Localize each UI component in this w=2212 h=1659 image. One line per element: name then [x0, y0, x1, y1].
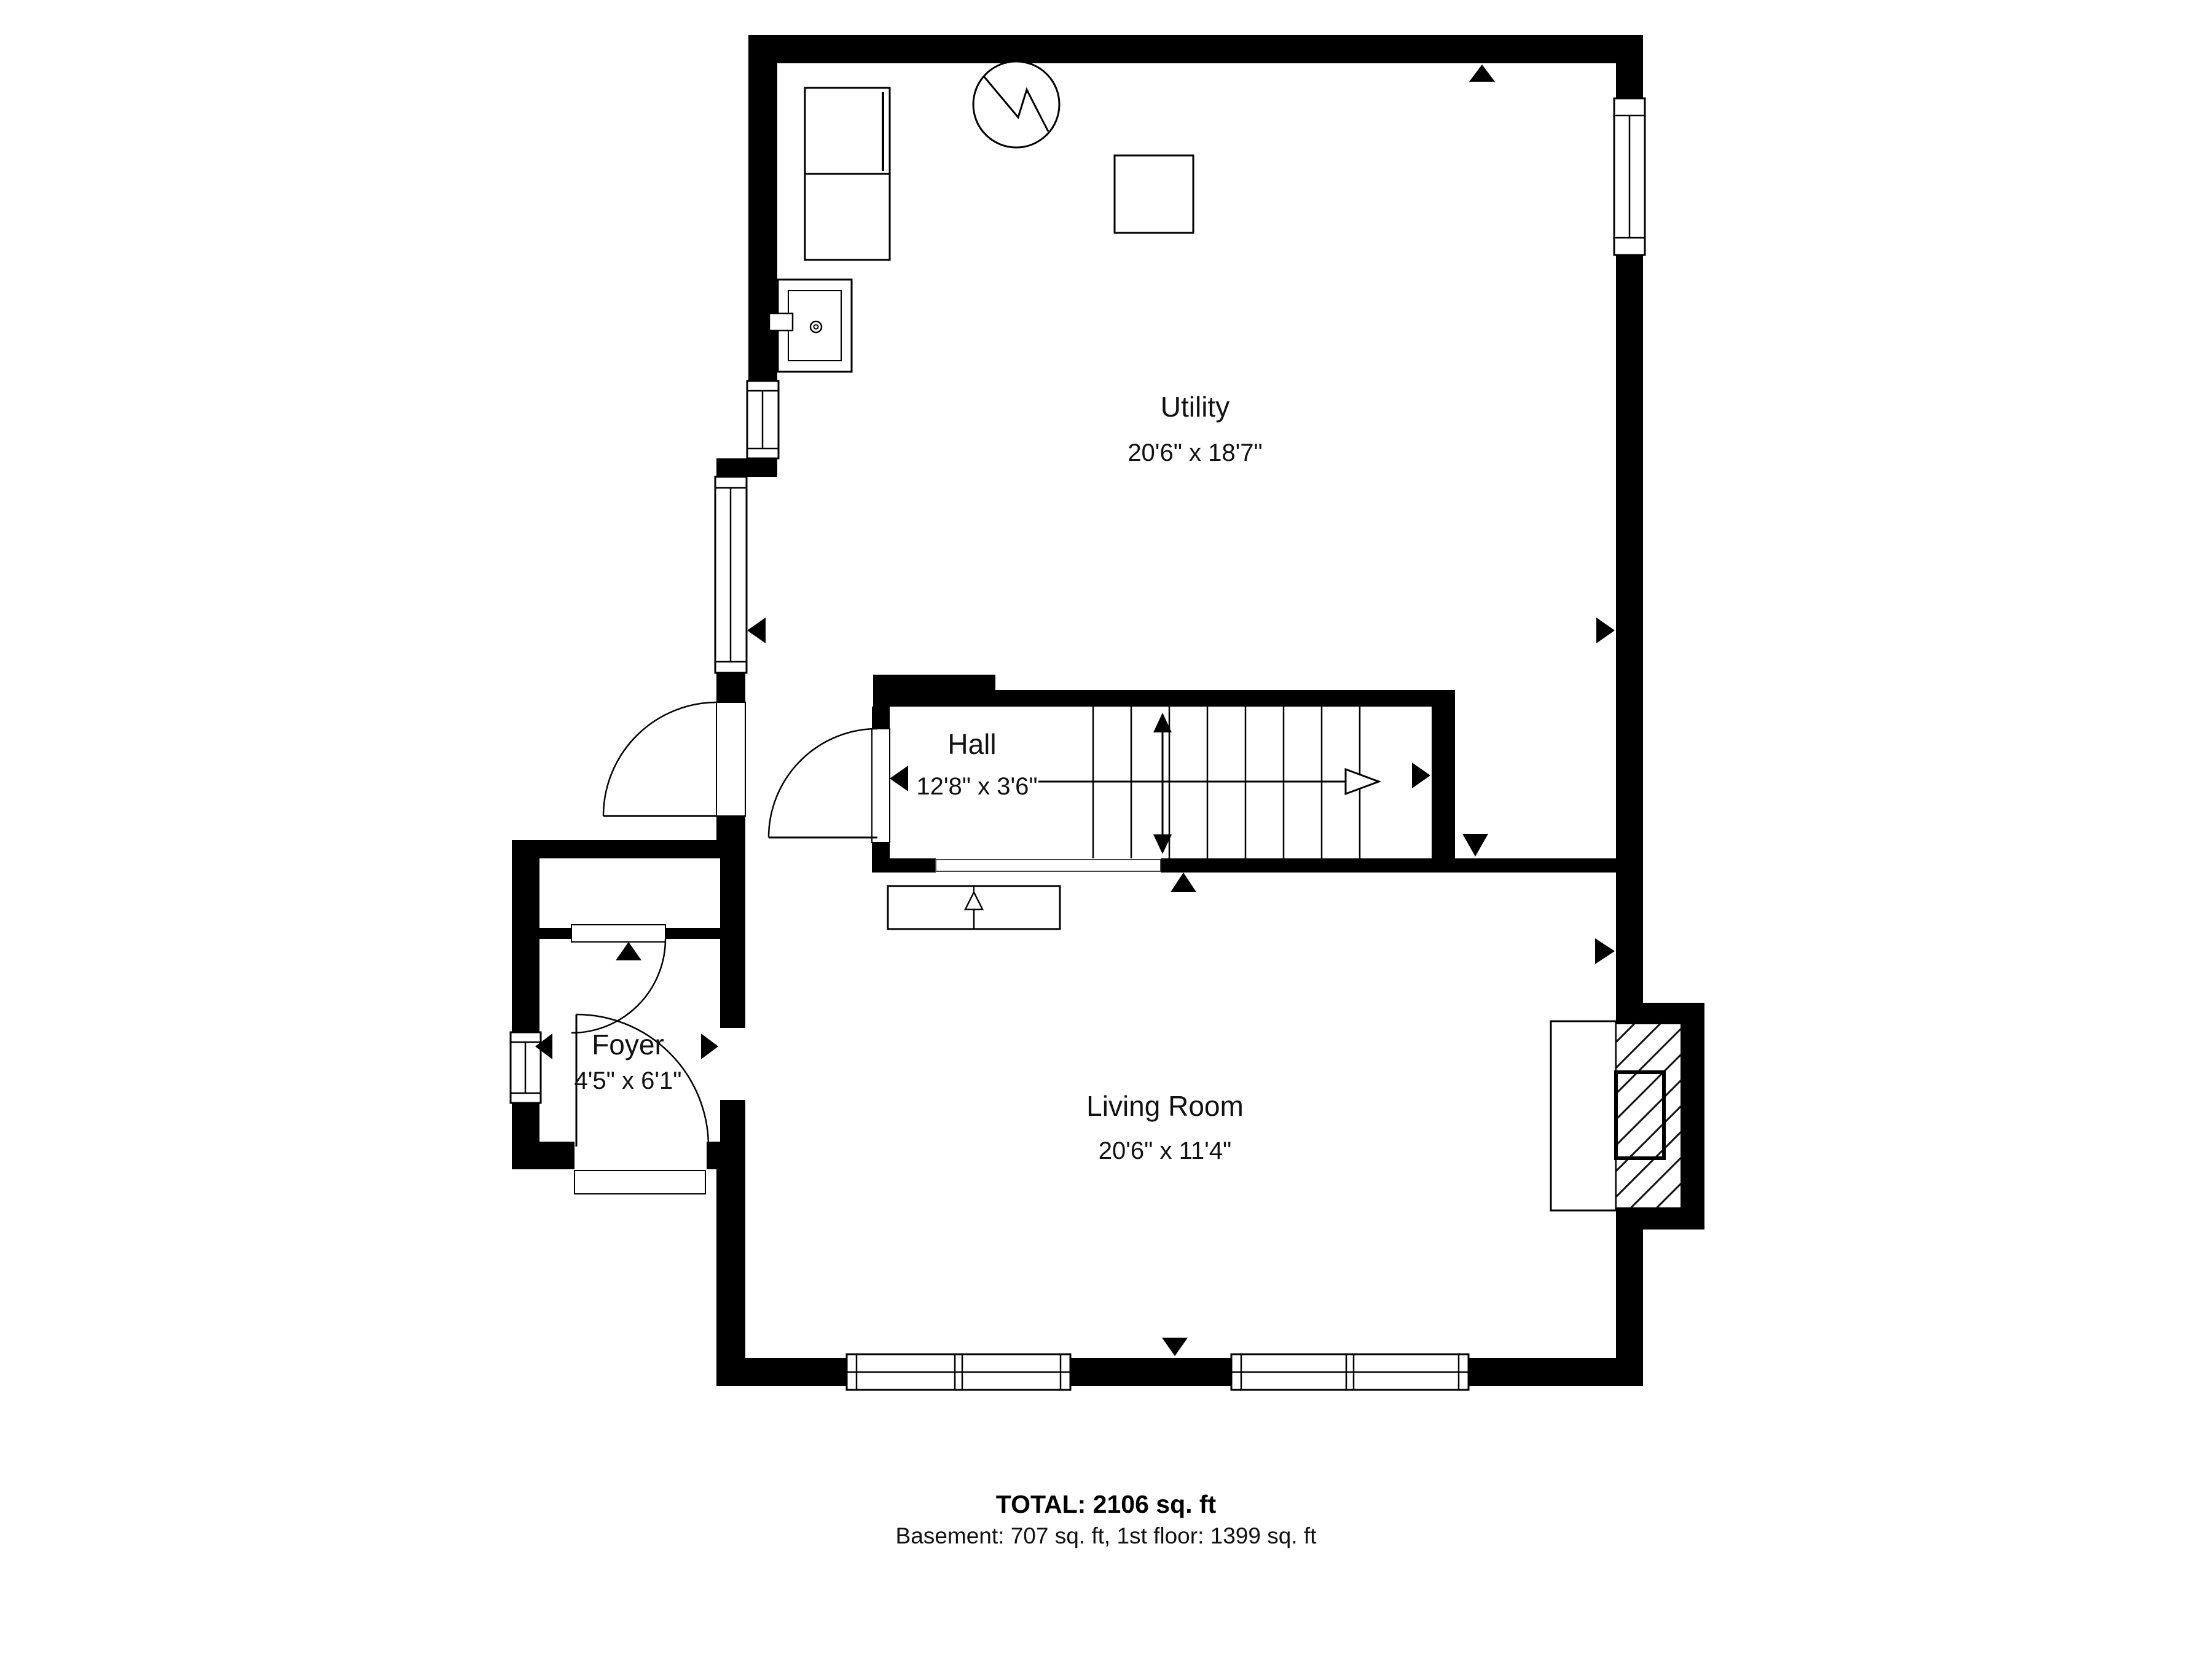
window-icon-west	[715, 477, 747, 673]
stairs-up-arrow-icon	[888, 886, 1060, 929]
laundry-sink-icon	[769, 280, 852, 372]
fixtures	[769, 61, 1193, 372]
front-door-threshold	[575, 1171, 705, 1194]
hall-bottom-wall-left	[873, 858, 936, 873]
foyer-bottom-wall-left	[512, 1142, 575, 1169]
room-dims-hall: 12'8" x 3'6"	[916, 773, 1037, 800]
opening-marker-icon-top	[1469, 65, 1495, 82]
living-room-left-wall	[716, 1169, 745, 1358]
room-label-living-room: Living Room	[1086, 1090, 1244, 1122]
room-label-utility: Utility	[1161, 391, 1230, 423]
water-heater-icon	[1115, 155, 1193, 233]
floor-breakdown-text: Basement: 707 sq. ft, 1st floor: 1399 sq…	[896, 1523, 1317, 1548]
window-icon-living-2	[1231, 1354, 1469, 1390]
utility-top-wall	[748, 35, 1643, 63]
stair-landing-step	[936, 860, 1161, 871]
fireplace	[1551, 1021, 1681, 1210]
stair-right-wall	[1432, 690, 1455, 873]
hall-bottom-wall-right	[1161, 858, 1643, 873]
utility-left-wall-upper	[748, 63, 777, 381]
stair-direction-arrow-icon	[1038, 769, 1379, 794]
room-dims-foyer: 4'5" x 6'1"	[575, 1067, 682, 1094]
closet-top-wall	[512, 840, 745, 858]
utility-left-wall-step	[716, 458, 777, 477]
right-wall-main	[1616, 255, 1643, 1003]
opening-marker-icon-foyer-opening	[701, 1033, 718, 1059]
floor-plan-page: Utility 20'6" x 18'7" Hall 12'8" x 3'6" …	[0, 0, 2212, 1659]
opening-marker-icon-hall-bottom	[1462, 834, 1488, 857]
foyer-left-wall-upper	[512, 858, 539, 1032]
opening-marker-icon-closet-door	[616, 942, 641, 960]
window-icon-foyer	[511, 1032, 541, 1103]
opening-marker-icon-west-window	[747, 618, 766, 643]
window-icon-utility-right	[1614, 98, 1645, 255]
opening-marker-icon-hall-door	[890, 766, 908, 791]
west-wall-between	[716, 673, 745, 702]
window-icon-utility-left	[747, 381, 779, 458]
foyer-right-wall-upper	[720, 858, 745, 1028]
total-area-text: TOTAL: 2106 sq. ft	[996, 1490, 1217, 1518]
opening-marker-icon-right-utility	[1596, 618, 1615, 643]
foyer-bottom-wall-right	[707, 1142, 745, 1169]
opening-marker-icon-living-right	[1595, 938, 1615, 964]
room-label-hall: Hall	[947, 728, 996, 760]
fireplace-hearth-icon	[1551, 1021, 1616, 1210]
door-swing-icon-hall	[769, 729, 890, 842]
windows	[511, 98, 1645, 1390]
floor-plan-drawing: Utility 20'6" x 18'7" Hall 12'8" x 3'6" …	[0, 0, 2212, 1659]
closet-separator-right	[665, 928, 720, 939]
hall-door-jamb-top	[872, 707, 890, 729]
right-wall-above-window	[1616, 35, 1643, 98]
fireplace-hatch	[1616, 1024, 1681, 1208]
appliance-icon	[805, 88, 890, 260]
opening-marker-icon-living-bottom	[1162, 1338, 1188, 1356]
hall-top-wall-notch	[873, 675, 995, 690]
closet-separator-left	[539, 928, 575, 939]
room-label-foyer: Foyer	[592, 1029, 664, 1061]
opening-marker-icon-step	[1171, 873, 1196, 892]
door-swing-icon-west-exterior	[603, 702, 745, 816]
opening-marker-icon-stair-wall	[1412, 763, 1430, 788]
door-swing-icon-closet	[571, 925, 665, 1033]
room-dims-utility: 20'6" x 18'7"	[1128, 439, 1262, 466]
hall-top-wall	[873, 690, 1455, 707]
room-dims-living-room: 20'6" x 11'4"	[1099, 1137, 1231, 1164]
electrical-panel-icon	[973, 61, 1059, 147]
foyer-right-wall-lower	[720, 1100, 745, 1142]
window-icon-living-1	[847, 1354, 1070, 1390]
